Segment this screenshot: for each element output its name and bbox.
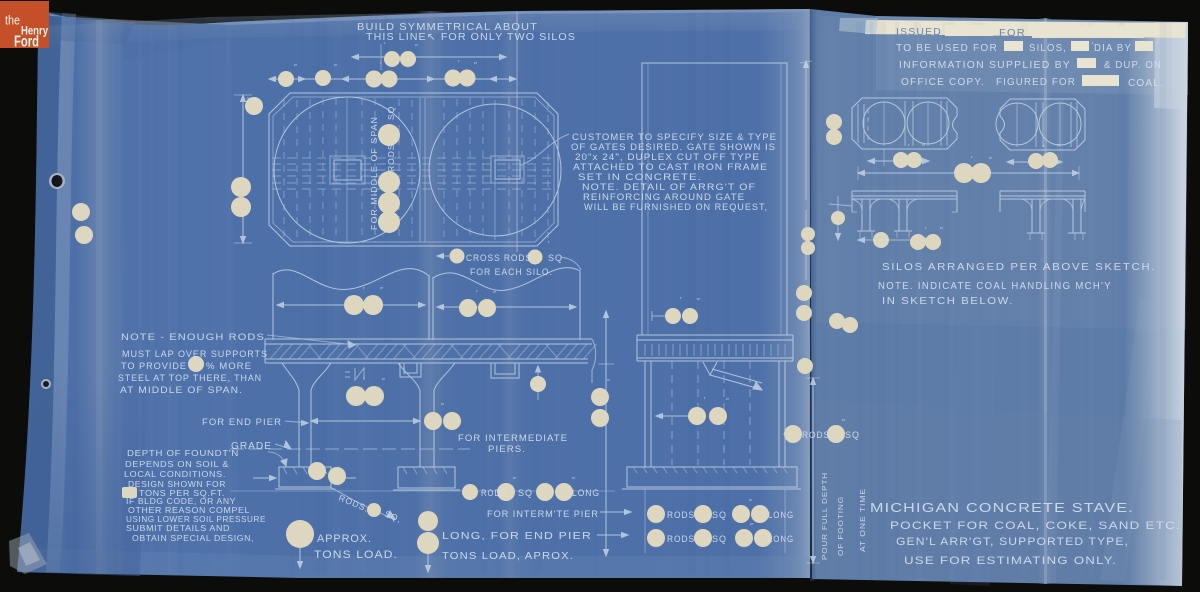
svg-text:NOTE. INDICATE COAL HANDLING M: NOTE. INDICATE COAL HANDLING MCH'Y: [878, 281, 1112, 292]
svg-text:GEN'L ARR'GT, SUPPORTED TYPE,: GEN'L ARR'GT, SUPPORTED TYPE,: [896, 536, 1129, 548]
svg-text:SQ: SQ: [845, 430, 860, 440]
svg-text:″: ″: [940, 226, 944, 235]
svg-text:″: ″: [382, 377, 386, 386]
svg-text:FOR INTERM'TE PIER: FOR INTERM'TE PIER: [487, 509, 599, 520]
svg-text:FOR INTERMEDIATE: FOR INTERMEDIATE: [458, 433, 568, 443]
svg-text:″: ″: [922, 143, 926, 152]
svg-text:SILOS,: SILOS,: [1029, 43, 1067, 54]
svg-text:INFORMATION SUPPLIED BY: INFORMATION SUPPLIED BY: [899, 60, 1071, 71]
svg-text:IN SKETCH BELOW.: IN SKETCH BELOW.: [882, 296, 1014, 307]
svg-text:WILL BE FURNISHED ON REQUEST,: WILL BE FURNISHED ON REQUEST,: [584, 202, 768, 213]
svg-text:LONG: LONG: [768, 510, 794, 520]
svg-text:′: ′: [908, 143, 911, 152]
svg-text:MUST LAP OVER SUPPORTS: MUST LAP OVER SUPPORTS: [122, 349, 268, 360]
svg-text:THIS LINE↖ FOR ONLY TWO SILOS: THIS LINE↖ FOR ONLY TWO SILOS: [366, 32, 576, 43]
svg-text:SQ: SQ: [712, 534, 727, 544]
svg-text:': ': [1092, 41, 1095, 50]
svg-text:TO BE USED FOR: TO BE USED FOR: [896, 43, 998, 54]
svg-text:': ': [1156, 41, 1159, 50]
svg-text:′: ′: [680, 296, 683, 305]
svg-text:′: ′: [476, 289, 479, 298]
svg-text:″: ″: [415, 43, 419, 52]
svg-text:″: ″: [750, 522, 754, 531]
svg-text:″: ″: [294, 63, 298, 72]
svg-text:STEEL AT TOP THERE, THAN: STEEL AT TOP THERE, THAN: [118, 373, 262, 384]
svg-text:′: ′: [384, 41, 387, 50]
svg-text:FOR MIDDLE OF SPAN: FOR MIDDLE OF SPAN: [369, 116, 379, 230]
svg-text:RODS: RODS: [481, 488, 507, 498]
svg-text:DEPTH OF FOUNDT'N: DEPTH OF FOUNDT'N: [127, 448, 239, 458]
svg-text:% MORE: % MORE: [206, 361, 252, 372]
svg-text:TONS LOAD, APROX.: TONS LOAD, APROX.: [442, 551, 574, 562]
svg-text:″: ″: [474, 61, 478, 70]
svg-text:PIERS.: PIERS.: [488, 444, 526, 454]
svg-text:TONS LOAD.: TONS LOAD.: [314, 549, 398, 561]
svg-text:′: ′: [363, 376, 366, 385]
svg-text:FIGURED FOR: FIGURED FOR: [996, 77, 1076, 88]
svg-text:SILOS ARRANGED PER ABOVE SKETC: SILOS ARRANGED PER ABOVE SKETCH.: [882, 262, 1156, 273]
svg-text:OBTAIN SPECIAL DESIGN,: OBTAIN SPECIAL DESIGN,: [132, 533, 254, 543]
svg-text:USE FOR ESTIMATING ONLY.: USE FOR ESTIMATING ONLY.: [904, 555, 1117, 567]
svg-text:LONG, FOR END PIER: LONG, FOR END PIER: [442, 531, 592, 542]
svg-text:LONG: LONG: [768, 534, 794, 544]
svg-text:″: ″: [842, 418, 846, 427]
svg-text:SUBMIT DETAILS AND: SUBMIT DETAILS AND: [126, 523, 230, 533]
svg-text:′: ′: [363, 286, 366, 295]
svg-text:SQ: SQ: [386, 106, 396, 120]
svg-text:″: ″: [607, 378, 611, 387]
svg-text:LOCAL CONDITIONS.: LOCAL CONDITIONS.: [124, 469, 226, 479]
svg-text:CROSS RODS: CROSS RODS: [466, 253, 532, 263]
svg-text:AT MIDDLE OF SPAN.: AT MIDDLE OF SPAN.: [120, 385, 243, 396]
svg-text:″: ″: [989, 156, 993, 165]
svg-text:& DUP. ON: & DUP. ON: [1104, 60, 1162, 71]
svg-text:SQ: SQ: [712, 510, 727, 520]
svg-text:Ford: Ford: [14, 34, 39, 51]
svg-text:FOR EACH SILO.: FOR EACH SILO.: [470, 267, 553, 277]
svg-text:DIA BY: DIA BY: [1094, 43, 1132, 54]
svg-text:APPROX.: APPROX.: [317, 533, 372, 545]
svg-text:RODS: RODS: [667, 510, 695, 520]
svg-text:″: ″: [572, 476, 576, 485]
svg-text:FOR END PIER: FOR END PIER: [202, 417, 282, 427]
svg-text:″: ″: [513, 476, 517, 485]
svg-text:DEPENDS ON SOIL &: DEPENDS ON SOIL &: [125, 459, 229, 469]
svg-text:COAL.: COAL.: [1128, 78, 1164, 89]
svg-text:″: ″: [334, 63, 338, 72]
svg-text:′: ′: [925, 226, 928, 235]
svg-text:′: ′: [458, 59, 461, 68]
svg-text:′: ′: [704, 396, 707, 405]
svg-text:′: ′: [971, 155, 974, 164]
svg-text:FOR: FOR: [999, 28, 1026, 39]
svg-text:AT ONE TIME: AT ONE TIME: [858, 488, 867, 552]
svg-text:′: ′: [548, 240, 551, 249]
svg-text:ISSUED: ISSUED: [896, 27, 942, 38]
svg-text:″: ″: [1057, 143, 1061, 152]
svg-text:2'4: 2'4: [246, 97, 257, 104]
svg-text:LONG: LONG: [572, 488, 600, 498]
svg-text:RODS: RODS: [802, 430, 830, 440]
svg-text:RODS: RODS: [386, 143, 396, 172]
svg-text:RODS: RODS: [667, 534, 695, 544]
svg-text:OFFICE COPY.: OFFICE COPY.: [901, 77, 985, 88]
svg-text:the: the: [5, 13, 20, 28]
svg-text:POUR FULL DEPTH: POUR FULL DEPTH: [820, 472, 829, 560]
svg-text:OF FOOTING: OF FOOTING: [836, 496, 845, 556]
svg-text:TO PROVIDE: TO PROVIDE: [121, 361, 187, 372]
svg-text:SQ: SQ: [548, 253, 563, 263]
svg-text:′: ′: [380, 61, 383, 70]
svg-text:″: ″: [749, 498, 753, 507]
svg-text:SQ: SQ: [518, 488, 533, 498]
svg-text:NOTE - ENOUGH RODS: NOTE - ENOUGH RODS: [121, 332, 265, 343]
svg-text:′: ′: [1043, 144, 1046, 153]
svg-text:″: ″: [396, 61, 400, 70]
svg-text:″: ″: [697, 297, 701, 306]
svg-text:″: ″: [441, 402, 445, 411]
svg-text:″: ″: [380, 286, 384, 295]
svg-text:MICHIGAN CONCRETE STAVE.: MICHIGAN CONCRETE STAVE.: [870, 500, 1134, 515]
svg-text:″: ″: [493, 290, 497, 299]
svg-text:″: ″: [726, 397, 730, 406]
svg-text:POCKET FOR COAL, COKE, SAND ET: POCKET FOR COAL, COKE, SAND ETC.: [890, 520, 1181, 532]
